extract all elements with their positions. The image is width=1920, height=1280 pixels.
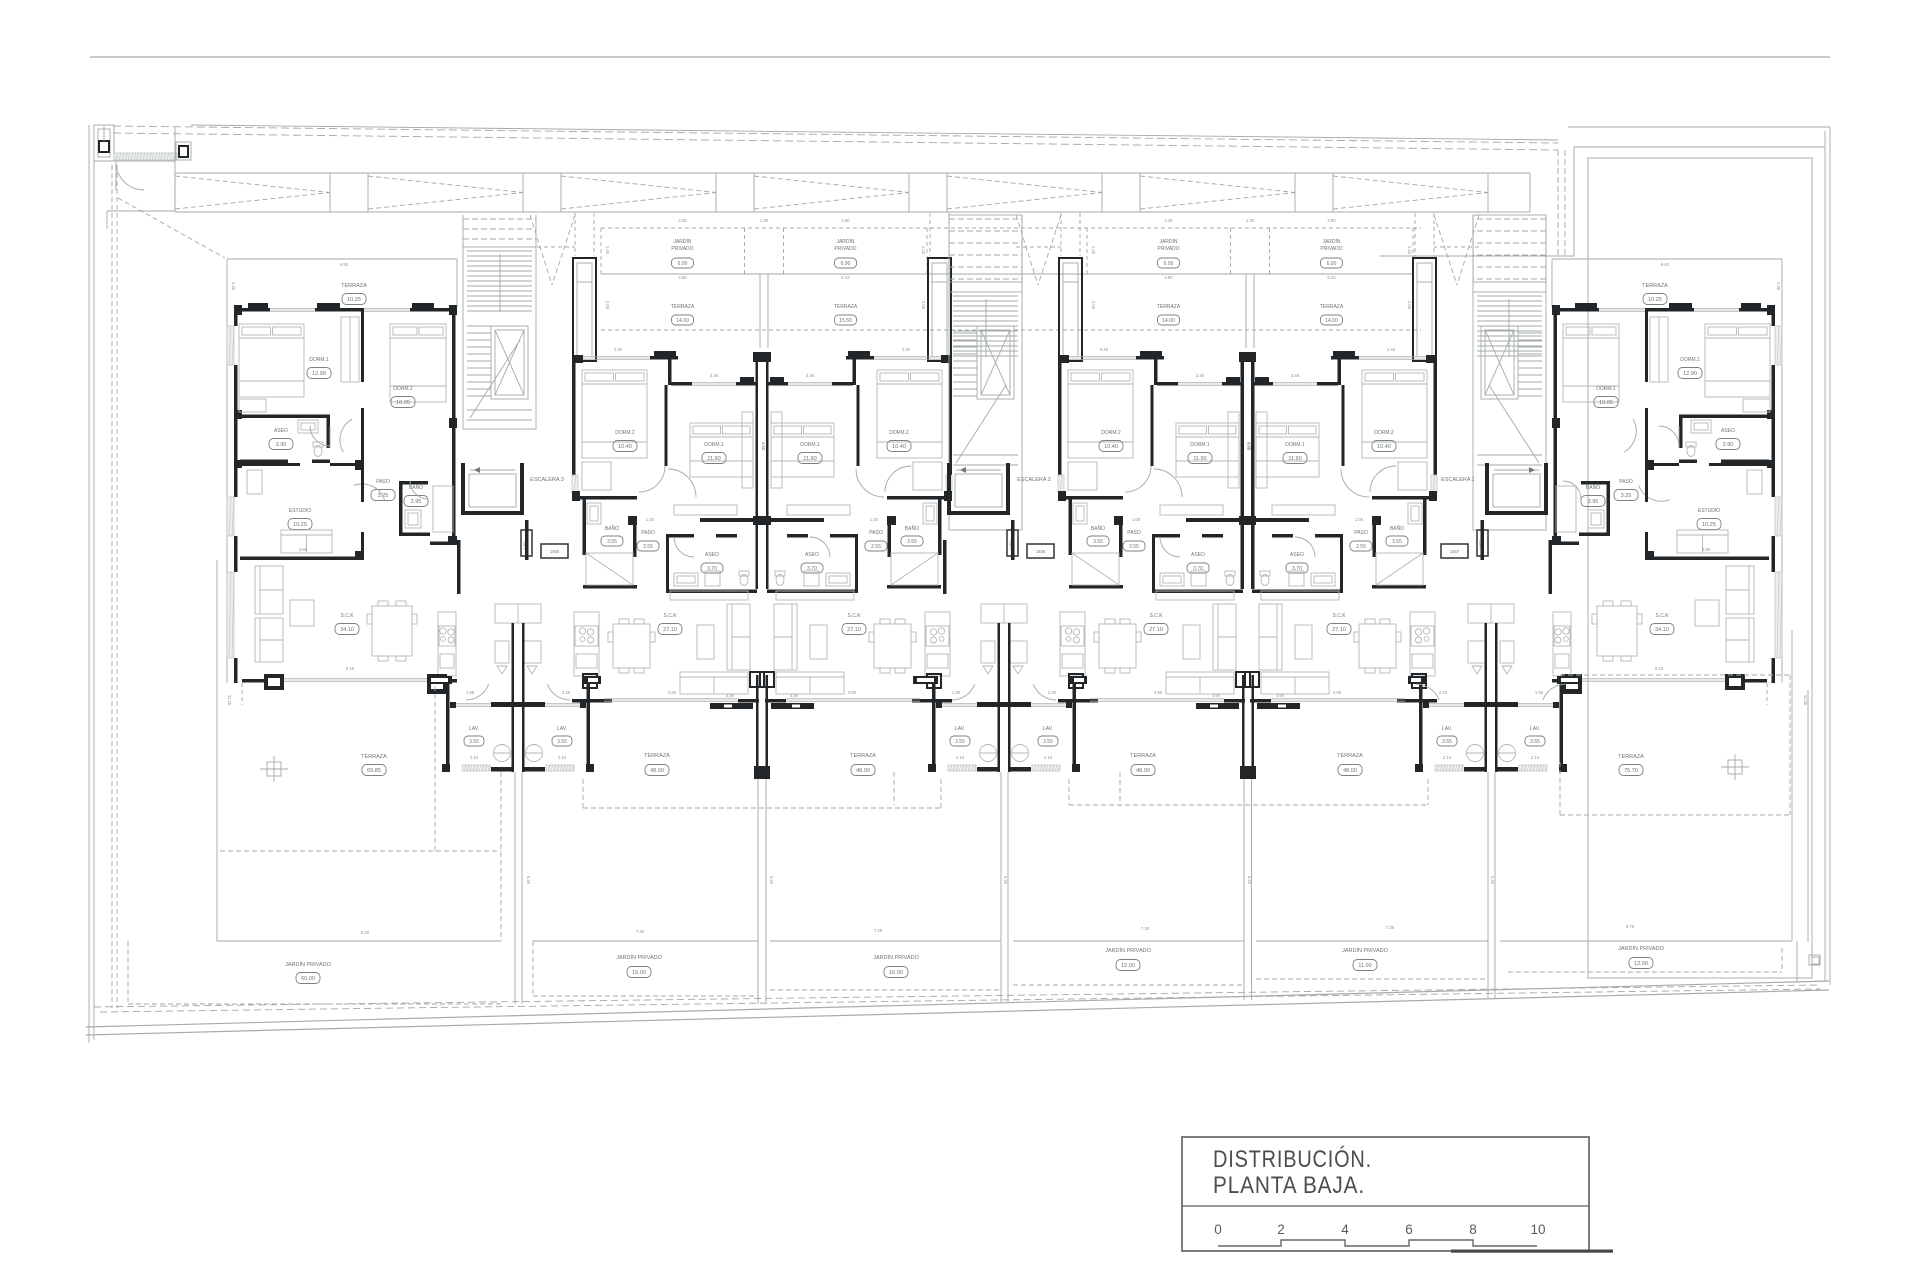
svg-text:TERRAZA: TERRAZA: [1618, 754, 1644, 760]
svg-text:16.00: 16.00: [889, 970, 903, 976]
svg-text:12.00: 12.00: [1634, 961, 1648, 967]
svg-text:10.40: 10.40: [1104, 444, 1118, 450]
svg-text:ESTUDIO: ESTUDIO: [1698, 508, 1720, 514]
svg-text:3.45: 3.45: [806, 373, 815, 378]
svg-text:3.45: 3.45: [710, 373, 719, 378]
svg-text:2.20: 2.20: [1048, 690, 1057, 695]
svg-text:DORM.2: DORM.2: [1101, 430, 1121, 436]
svg-text:6: 6: [1405, 1222, 1413, 1237]
svg-text:1.30: 1.30: [231, 282, 236, 291]
svg-text:TERRAZA: TERRAZA: [341, 283, 367, 289]
svg-text:4.85: 4.85: [678, 275, 687, 280]
svg-text:ASEO: ASEO: [274, 428, 288, 434]
svg-text:2.05: 2.05: [605, 301, 610, 310]
svg-text:1.30: 1.30: [760, 218, 769, 223]
svg-text:6.83: 6.83: [1661, 262, 1670, 267]
svg-text:PRIVADO: PRIVADO: [1320, 246, 1342, 252]
svg-text:4.00: 4.00: [1246, 442, 1251, 451]
svg-text:6.00: 6.00: [678, 261, 688, 267]
svg-text:1457: 1457: [1450, 549, 1460, 554]
svg-text:2.20: 2.20: [562, 690, 571, 695]
svg-text:2: 2: [1277, 1222, 1285, 1237]
svg-text:PASO: PASO: [869, 530, 883, 536]
svg-text:27.10: 27.10: [663, 627, 677, 633]
svg-text:JARDÍN PRIVADO: JARDÍN PRIVADO: [1342, 947, 1388, 954]
svg-text:5.25: 5.25: [1247, 876, 1252, 885]
svg-text:4.90: 4.90: [841, 218, 850, 223]
svg-text:BAÑO: BAÑO: [605, 525, 619, 532]
svg-text:6.83: 6.83: [340, 262, 349, 267]
svg-text:2.10: 2.10: [558, 755, 567, 760]
svg-text:S.C.K: S.C.K: [1332, 613, 1346, 619]
svg-text:1.30: 1.30: [1776, 282, 1781, 291]
svg-text:DORM.1: DORM.1: [309, 357, 329, 363]
svg-text:JARDÍN PRIVADO: JARDÍN PRIVADO: [1105, 947, 1151, 954]
svg-text:JARDÍN: JARDÍN: [1322, 238, 1340, 245]
svg-text:6.10: 6.10: [346, 666, 355, 671]
svg-text:BAÑO: BAÑO: [1091, 525, 1105, 532]
svg-text:LAV.: LAV.: [1043, 726, 1053, 732]
svg-text:LAV.: LAV.: [1530, 726, 1540, 732]
svg-text:PASO: PASO: [641, 530, 655, 536]
svg-text:27.10: 27.10: [1149, 627, 1163, 633]
svg-text:3.95: 3.95: [411, 499, 422, 505]
svg-text:3.90: 3.90: [1723, 442, 1734, 448]
svg-text:1.00: 1.00: [870, 517, 879, 522]
svg-text:4.90: 4.90: [1333, 690, 1342, 695]
svg-text:8: 8: [1469, 1222, 1477, 1237]
svg-text:2.05: 2.05: [921, 301, 926, 310]
svg-text:2.10: 2.10: [1443, 755, 1452, 760]
svg-text:JARDÍN: JARDÍN: [836, 238, 854, 245]
svg-text:2.10: 2.10: [470, 755, 479, 760]
svg-text:3.25: 3.25: [1621, 493, 1632, 499]
svg-text:TERRAZA: TERRAZA: [850, 753, 876, 759]
svg-text:7.35: 7.35: [636, 929, 645, 934]
svg-text:2.20: 2.20: [1439, 690, 1448, 695]
svg-text:1.00: 1.00: [646, 517, 655, 522]
svg-text:48.00: 48.00: [856, 768, 870, 774]
svg-text:3.90: 3.90: [1702, 547, 1711, 552]
svg-text:4.35: 4.35: [1164, 218, 1173, 223]
svg-text:10.40: 10.40: [1377, 444, 1391, 450]
svg-text:2.55: 2.55: [643, 544, 653, 550]
svg-text:DORM.1: DORM.1: [1680, 357, 1700, 363]
svg-text:ESTUDIO: ESTUDIO: [289, 508, 311, 514]
svg-text:3.55: 3.55: [1043, 739, 1053, 745]
svg-text:TERRAZA: TERRAZA: [1320, 304, 1344, 310]
svg-text:11.90: 11.90: [707, 456, 720, 462]
svg-text:1.95: 1.95: [1535, 690, 1544, 695]
svg-text:PRIVADO: PRIVADO: [1157, 246, 1179, 252]
svg-text:9.20: 9.20: [361, 930, 370, 935]
svg-text:TERRAZA: TERRAZA: [644, 753, 670, 759]
svg-text:2.40: 2.40: [614, 347, 623, 352]
svg-text:DORM.2: DORM.2: [393, 386, 413, 392]
svg-text:1.95: 1.95: [952, 690, 961, 695]
svg-text:5.43: 5.43: [1327, 275, 1336, 280]
svg-text:3.90: 3.90: [276, 442, 287, 448]
svg-text:2.40: 2.40: [902, 347, 911, 352]
svg-text:3.95: 3.95: [1588, 499, 1599, 505]
svg-text:6.90: 6.90: [841, 261, 851, 267]
svg-text:12.00: 12.00: [1121, 963, 1135, 969]
svg-text:DORM.1: DORM.1: [1190, 442, 1210, 448]
svg-text:9.70: 9.70: [1626, 924, 1635, 929]
svg-text:11.00: 11.00: [1358, 963, 1371, 969]
svg-text:PLANTA BAJA.: PLANTA BAJA.: [1213, 1172, 1365, 1199]
svg-text:15.00: 15.00: [632, 970, 646, 976]
svg-text:4.90: 4.90: [790, 693, 799, 698]
svg-text:5.25: 5.25: [1003, 876, 1008, 885]
svg-text:1.00: 1.00: [1132, 517, 1141, 522]
svg-text:2.10: 2.10: [1044, 755, 1053, 760]
svg-text:3.55: 3.55: [469, 739, 479, 745]
svg-text:2.40: 2.40: [1100, 347, 1109, 352]
svg-text:JARDÍN PRIVADO: JARDÍN PRIVADO: [285, 961, 331, 968]
svg-text:1.95: 1.95: [466, 690, 475, 695]
svg-text:ASEO: ASEO: [1721, 428, 1735, 434]
svg-text:TERRAZA: TERRAZA: [1157, 304, 1181, 310]
svg-text:3.55: 3.55: [557, 739, 567, 745]
svg-text:5.25: 5.25: [769, 876, 774, 885]
svg-text:ASEO: ASEO: [805, 552, 819, 558]
svg-text:PRIVADO: PRIVADO: [671, 246, 693, 252]
svg-text:JARDÍN: JARDÍN: [673, 238, 691, 245]
svg-text:LAV.: LAV.: [469, 726, 479, 732]
svg-text:14.00: 14.00: [1162, 318, 1175, 324]
svg-text:ESCALERA 3: ESCALERA 3: [530, 477, 564, 483]
svg-text:PASO: PASO: [376, 479, 390, 485]
svg-text:LAV.: LAV.: [955, 726, 965, 732]
svg-text:3.55: 3.55: [1442, 739, 1452, 745]
svg-text:5.25: 5.25: [526, 876, 531, 885]
svg-text:TERRAZA: TERRAZA: [361, 754, 387, 760]
svg-text:69.85: 69.85: [367, 768, 381, 774]
svg-text:7.35: 7.35: [874, 928, 883, 933]
svg-text:3.55: 3.55: [1093, 539, 1103, 545]
svg-text:11.60: 11.60: [1803, 695, 1808, 706]
svg-text:0: 0: [1214, 1222, 1222, 1237]
svg-text:10.25: 10.25: [347, 297, 361, 303]
svg-text:4.90: 4.90: [1212, 693, 1221, 698]
svg-text:1.40: 1.40: [1091, 246, 1096, 255]
svg-text:S.C.K: S.C.K: [340, 613, 354, 619]
svg-text:7.35: 7.35: [1141, 926, 1150, 931]
svg-text:10.40: 10.40: [892, 444, 906, 450]
svg-text:2.10: 2.10: [1531, 755, 1540, 760]
svg-text:14.00: 14.00: [1325, 318, 1338, 324]
svg-text:6.00: 6.00: [1164, 261, 1174, 267]
svg-text:10.25: 10.25: [293, 522, 307, 528]
svg-text:2.55: 2.55: [871, 544, 881, 550]
svg-text:75.70: 75.70: [1624, 768, 1638, 774]
svg-text:4.00: 4.00: [761, 442, 766, 451]
svg-text:3.45: 3.45: [1196, 373, 1205, 378]
svg-text:10.05: 10.05: [396, 400, 410, 406]
svg-text:S.C.K: S.C.K: [663, 613, 677, 619]
svg-text:4.90: 4.90: [1276, 693, 1285, 698]
svg-text:JARDÍN PRIVADO: JARDÍN PRIVADO: [873, 954, 919, 961]
svg-text:12.90: 12.90: [1683, 371, 1697, 377]
svg-text:TERRAZA: TERRAZA: [1642, 283, 1668, 289]
svg-text:1456: 1456: [1036, 549, 1046, 554]
svg-text:ESCALERA 2: ESCALERA 2: [1017, 477, 1051, 483]
svg-text:DORM.2: DORM.2: [1374, 430, 1394, 436]
svg-text:48.00: 48.00: [1343, 768, 1357, 774]
svg-text:TERRAZA: TERRAZA: [1130, 753, 1156, 759]
svg-text:2.55: 2.55: [1129, 544, 1139, 550]
svg-text:BAÑO: BAÑO: [905, 525, 919, 532]
svg-text:DISTRIBUCIÓN.: DISTRIBUCIÓN.: [1213, 1146, 1372, 1173]
svg-text:1.40: 1.40: [605, 246, 610, 255]
svg-text:S.C.K: S.C.K: [847, 613, 861, 619]
svg-text:15.50: 15.50: [839, 318, 852, 324]
svg-text:PRIVADO: PRIVADO: [834, 246, 856, 252]
svg-text:2.40: 2.40: [1387, 347, 1396, 352]
svg-text:10.25: 10.25: [1648, 297, 1662, 303]
svg-text:ESCALERA 1: ESCALERA 1: [1441, 477, 1475, 483]
svg-text:TERRAZA: TERRAZA: [834, 304, 858, 310]
svg-text:4.85: 4.85: [1164, 275, 1173, 280]
svg-text:JARDÍN PRIVADO: JARDÍN PRIVADO: [1618, 945, 1664, 952]
svg-text:ASEO: ASEO: [705, 552, 719, 558]
svg-text:ASEO: ASEO: [1191, 552, 1205, 558]
svg-text:3.55: 3.55: [907, 539, 917, 545]
svg-text:4.90: 4.90: [726, 693, 735, 698]
svg-text:3.45: 3.45: [1291, 373, 1300, 378]
svg-text:2.10: 2.10: [956, 755, 965, 760]
svg-text:DORM.1: DORM.1: [1285, 442, 1305, 448]
svg-text:48.00: 48.00: [1136, 768, 1150, 774]
svg-text:10.40: 10.40: [618, 444, 632, 450]
svg-text:10.05: 10.05: [1599, 400, 1613, 406]
svg-text:1.40: 1.40: [921, 246, 926, 255]
svg-text:1.00: 1.00: [1355, 517, 1364, 522]
svg-text:3.55: 3.55: [1530, 739, 1540, 745]
svg-text:27.10: 27.10: [847, 627, 861, 633]
svg-text:10: 10: [1530, 1222, 1545, 1237]
svg-text:48.00: 48.00: [650, 768, 664, 774]
svg-text:LAV.: LAV.: [557, 726, 567, 732]
svg-text:TERRAZA: TERRAZA: [671, 304, 695, 310]
svg-text:6.10: 6.10: [1655, 666, 1664, 671]
svg-text:1.30: 1.30: [1246, 218, 1255, 223]
svg-text:DORM.2: DORM.2: [615, 430, 635, 436]
svg-text:TERRAZA: TERRAZA: [1337, 753, 1363, 759]
svg-text:12.90: 12.90: [312, 371, 326, 377]
svg-text:PASO: PASO: [1127, 530, 1141, 536]
svg-text:3.90: 3.90: [299, 547, 308, 552]
svg-text:4.35: 4.35: [678, 218, 687, 223]
svg-text:4.90: 4.90: [848, 690, 857, 695]
svg-text:4.90: 4.90: [1154, 690, 1163, 695]
svg-text:34.10: 34.10: [340, 627, 354, 633]
svg-text:PASO: PASO: [1354, 530, 1368, 536]
svg-text:27.10: 27.10: [1332, 627, 1346, 633]
svg-text:1.40: 1.40: [1407, 246, 1412, 255]
svg-text:JARDÍN: JARDÍN: [1159, 238, 1177, 245]
svg-text:LAV.: LAV.: [1442, 726, 1452, 732]
svg-text:4.90: 4.90: [668, 690, 677, 695]
svg-text:60.00: 60.00: [301, 976, 315, 982]
svg-text:3.55: 3.55: [607, 539, 617, 545]
svg-text:5.43: 5.43: [841, 275, 850, 280]
svg-text:11.90: 11.90: [1288, 456, 1301, 462]
svg-text:6.00: 6.00: [1327, 261, 1337, 267]
svg-text:3.55: 3.55: [1392, 539, 1402, 545]
svg-text:11.25: 11.25: [227, 695, 232, 706]
svg-text:JARDÍN PRIVADO: JARDÍN PRIVADO: [616, 954, 662, 961]
svg-text:PASO: PASO: [1619, 479, 1633, 485]
svg-text:11.90: 11.90: [1193, 456, 1206, 462]
svg-text:7.35: 7.35: [1386, 925, 1395, 930]
svg-text:2.55: 2.55: [1356, 544, 1366, 550]
svg-text:1460: 1460: [550, 549, 560, 554]
svg-text:2.05: 2.05: [1091, 301, 1096, 310]
svg-text:4: 4: [1341, 1222, 1349, 1237]
svg-text:S.C.K: S.C.K: [1655, 613, 1669, 619]
svg-text:DORM.2: DORM.2: [889, 430, 909, 436]
svg-text:5.25: 5.25: [1490, 876, 1495, 885]
svg-text:DORM.2: DORM.2: [1596, 386, 1616, 392]
svg-text:34.10: 34.10: [1655, 627, 1669, 633]
svg-text:DORM.1: DORM.1: [704, 442, 724, 448]
svg-text:BAÑO: BAÑO: [1390, 525, 1404, 532]
svg-text:11.90: 11.90: [803, 456, 816, 462]
svg-text:14.00: 14.00: [676, 318, 689, 324]
svg-text:ASEO: ASEO: [1290, 552, 1304, 558]
svg-text:DORM.1: DORM.1: [800, 442, 820, 448]
svg-text:4.90: 4.90: [1327, 218, 1336, 223]
svg-text:BAÑO: BAÑO: [1586, 484, 1600, 491]
svg-text:S.C.K: S.C.K: [1149, 613, 1163, 619]
svg-text:3.55: 3.55: [955, 739, 965, 745]
svg-text:2.05: 2.05: [1407, 301, 1412, 310]
svg-text:10.25: 10.25: [1702, 522, 1716, 528]
